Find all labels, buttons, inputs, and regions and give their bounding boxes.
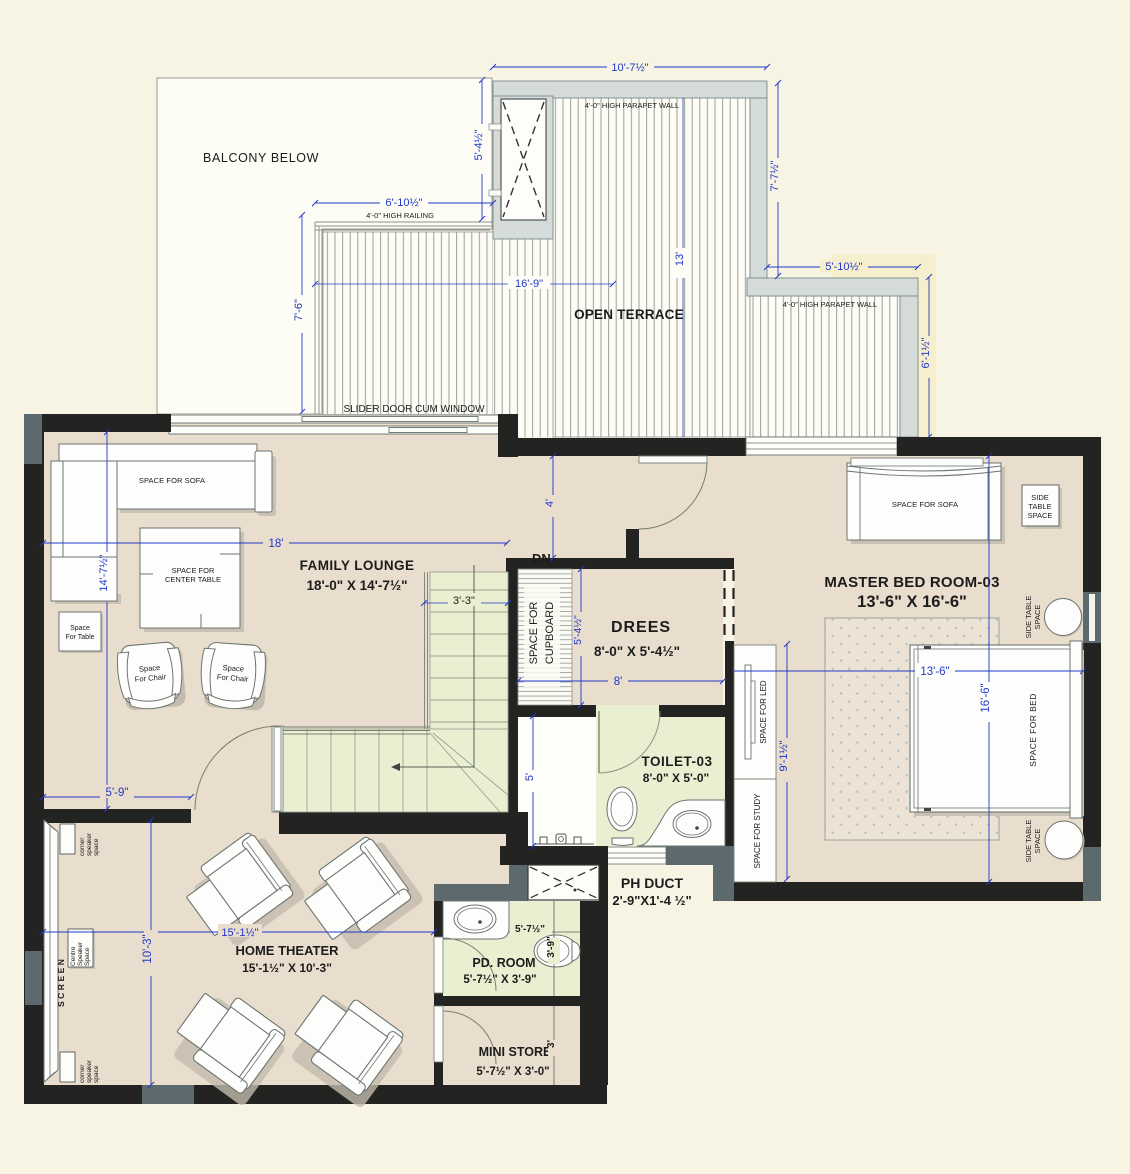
svg-text:6'-1½": 6'-1½" bbox=[920, 337, 932, 368]
svg-text:6'-10½": 6'-10½" bbox=[385, 197, 422, 209]
svg-text:5'-4½": 5'-4½" bbox=[473, 129, 485, 160]
svg-text:speaker: speaker bbox=[86, 832, 93, 856]
svg-text:3': 3' bbox=[546, 1040, 557, 1048]
svg-text:DN: DN bbox=[532, 551, 551, 566]
svg-text:13'-6" X 16'-6": 13'-6" X 16'-6" bbox=[857, 593, 967, 611]
svg-text:8'-0" X 5'-4½": 8'-0" X 5'-4½" bbox=[594, 644, 680, 659]
svg-text:speaker: speaker bbox=[86, 1059, 93, 1083]
svg-text:13': 13' bbox=[674, 252, 686, 266]
svg-text:SPACE FOR SOFA: SPACE FOR SOFA bbox=[892, 500, 958, 509]
svg-text:DREES: DREES bbox=[611, 619, 671, 636]
svg-text:space: space bbox=[93, 1065, 100, 1083]
svg-text:8': 8' bbox=[614, 676, 623, 688]
svg-text:corner: corner bbox=[79, 1064, 86, 1083]
svg-text:Centre: Centre bbox=[70, 946, 77, 966]
svg-text:BALCONY BELOW: BALCONY BELOW bbox=[203, 151, 319, 165]
svg-text:TOILET-03: TOILET-03 bbox=[641, 754, 712, 769]
svg-text:MINI STORE: MINI STORE bbox=[479, 1045, 552, 1059]
svg-text:Space: Space bbox=[70, 625, 90, 632]
svg-text:SPACE FOR STUDY: SPACE FOR STUDY bbox=[753, 793, 762, 869]
svg-text:4'-0" HIGH PARAPET WALL: 4'-0" HIGH PARAPET WALL bbox=[585, 101, 679, 110]
svg-text:7'-7½": 7'-7½" bbox=[769, 160, 781, 191]
svg-text:SPACE FOR SOFA: SPACE FOR SOFA bbox=[139, 476, 205, 485]
svg-text:13'-6": 13'-6" bbox=[920, 666, 949, 678]
svg-text:2'-9"X1'-4 ½": 2'-9"X1'-4 ½" bbox=[612, 893, 691, 908]
svg-text:corner: corner bbox=[79, 837, 86, 856]
svg-text:18': 18' bbox=[269, 538, 284, 550]
svg-text:TABLE: TABLE bbox=[1028, 502, 1051, 511]
svg-text:CUPBOARD: CUPBOARD bbox=[544, 602, 556, 664]
svg-text:5'-10½": 5'-10½" bbox=[825, 261, 862, 273]
svg-text:space: space bbox=[93, 838, 100, 856]
svg-text:5': 5' bbox=[524, 773, 536, 781]
svg-text:4': 4' bbox=[544, 499, 556, 507]
svg-text:10'-3": 10'-3" bbox=[142, 934, 154, 963]
svg-text:10'-7½": 10'-7½" bbox=[611, 62, 648, 74]
svg-text:For Table: For Table bbox=[65, 634, 94, 641]
svg-text:5'-4½": 5'-4½" bbox=[572, 615, 584, 645]
svg-text:5'-7½": 5'-7½" bbox=[515, 924, 545, 935]
svg-text:Space: Space bbox=[222, 663, 244, 673]
svg-text:9'-1½": 9'-1½" bbox=[778, 740, 790, 771]
svg-text:SIDE TABLE: SIDE TABLE bbox=[1024, 596, 1033, 639]
svg-text:SPACE FOR: SPACE FOR bbox=[172, 566, 215, 575]
svg-text:Space: Space bbox=[84, 947, 91, 966]
svg-text:5'-7½" X 3'-9": 5'-7½" X 3'-9" bbox=[463, 974, 536, 986]
svg-text:8'-0" X 5'-0": 8'-0" X 5'-0" bbox=[643, 771, 709, 785]
svg-text:CENTER TABLE: CENTER TABLE bbox=[165, 575, 221, 584]
svg-text:SPACE: SPACE bbox=[1033, 605, 1042, 630]
svg-text:MASTER BED ROOM-03: MASTER BED ROOM-03 bbox=[824, 574, 999, 591]
svg-text:SPACE FOR BED: SPACE FOR BED bbox=[1028, 693, 1038, 767]
svg-text:5'-9": 5'-9" bbox=[106, 787, 129, 799]
svg-text:3'-9": 3'-9" bbox=[546, 936, 557, 958]
svg-text:14'-7½": 14'-7½" bbox=[98, 554, 110, 591]
svg-text:SIDE TABLE: SIDE TABLE bbox=[1024, 820, 1033, 863]
svg-text:SLIDER DOOR CUM WINDOW: SLIDER DOOR CUM WINDOW bbox=[343, 404, 485, 415]
svg-text:3'-3": 3'-3" bbox=[453, 595, 475, 607]
svg-text:Speaker: Speaker bbox=[77, 941, 84, 966]
svg-text:4'-0" HIGH PARAPET WALL: 4'-0" HIGH PARAPET WALL bbox=[783, 300, 877, 309]
svg-text:FAMILY LOUNGE: FAMILY LOUNGE bbox=[300, 558, 415, 573]
svg-text:PH DUCT: PH DUCT bbox=[621, 875, 684, 891]
svg-text:SIDE: SIDE bbox=[1031, 493, 1049, 502]
svg-text:SPACE: SPACE bbox=[1028, 511, 1053, 520]
svg-text:SCREEN: SCREEN bbox=[56, 957, 66, 1007]
svg-text:HOME THEATER: HOME THEATER bbox=[235, 943, 339, 958]
svg-text:OPEN TERRACE: OPEN TERRACE bbox=[574, 307, 684, 322]
svg-text:SPACE FOR: SPACE FOR bbox=[528, 602, 540, 665]
svg-text:5'-7½" X 3'-0": 5'-7½" X 3'-0" bbox=[476, 1066, 549, 1078]
svg-text:16'-6": 16'-6" bbox=[980, 683, 992, 712]
svg-text:16'-9": 16'-9" bbox=[515, 278, 543, 290]
svg-text:PD. ROOM: PD. ROOM bbox=[472, 956, 535, 970]
svg-text:7'-6": 7'-6" bbox=[293, 299, 305, 321]
svg-text:SPACE: SPACE bbox=[1033, 829, 1042, 854]
svg-text:15'-1½": 15'-1½" bbox=[221, 927, 258, 939]
svg-text:15'-1½" X 10'-3": 15'-1½" X 10'-3" bbox=[242, 961, 332, 975]
svg-text:4'-0" HIGH RAILING: 4'-0" HIGH RAILING bbox=[366, 211, 434, 220]
svg-text:SPACE FOR LED: SPACE FOR LED bbox=[759, 680, 768, 744]
svg-text:18'-0" X 14'-7½": 18'-0" X 14'-7½" bbox=[306, 578, 407, 593]
